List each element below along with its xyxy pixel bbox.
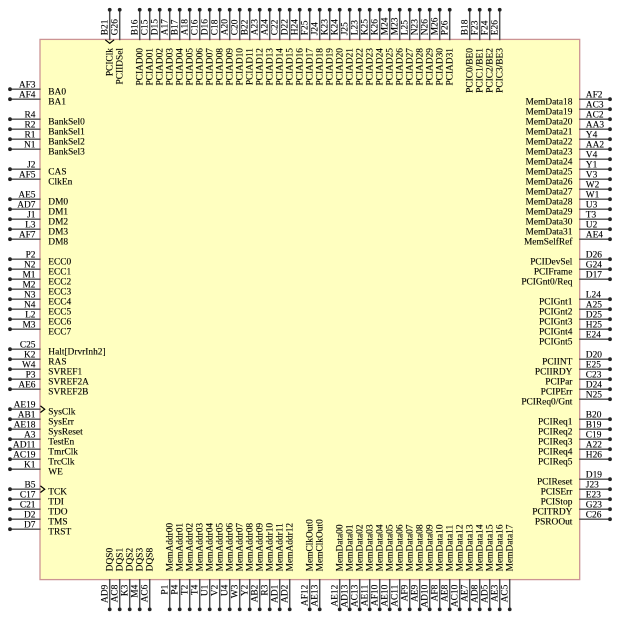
- svg-text:PCIIRDY: PCIIRDY: [535, 368, 573, 378]
- svg-text:D22: D22: [281, 19, 291, 35]
- svg-text:B17: B17: [171, 19, 181, 35]
- svg-text:MemClkOut0: MemClkOut0: [316, 519, 326, 571]
- svg-text:U2: U2: [586, 221, 598, 231]
- svg-text:BankSel2: BankSel2: [48, 138, 85, 148]
- svg-text:J24: J24: [311, 22, 321, 35]
- svg-text:DM0: DM0: [48, 198, 68, 208]
- svg-text:DM2: DM2: [48, 218, 68, 228]
- svg-text:MemData11: MemData11: [446, 524, 456, 571]
- svg-text:A17: A17: [161, 19, 171, 35]
- svg-text:ECC1: ECC1: [48, 268, 71, 278]
- svg-text:D7: D7: [24, 521, 36, 531]
- svg-text:TDO: TDO: [48, 508, 67, 518]
- svg-text:BankSel3: BankSel3: [48, 148, 85, 158]
- svg-text:DQS2: DQS2: [126, 548, 136, 572]
- svg-text:AF2: AF2: [586, 91, 603, 101]
- svg-text:PCIAD24: PCIAD24: [376, 48, 386, 86]
- svg-text:D25: D25: [586, 311, 602, 321]
- svg-text:MemAddr11: MemAddr11: [276, 523, 286, 571]
- svg-text:C20: C20: [231, 19, 241, 35]
- svg-text:J25: J25: [341, 22, 351, 35]
- svg-text:TDI: TDI: [48, 498, 64, 508]
- svg-text:TestEn: TestEn: [48, 438, 74, 448]
- svg-text:P3: P3: [26, 371, 36, 381]
- svg-text:TRST: TRST: [48, 528, 71, 538]
- svg-text:W1: W1: [586, 191, 600, 201]
- svg-text:MemAddr05: MemAddr05: [216, 523, 226, 572]
- svg-text:C17: C17: [20, 491, 36, 501]
- svg-text:V2: V2: [211, 584, 221, 596]
- svg-text:AB1: AB1: [18, 411, 36, 421]
- svg-text:K23: K23: [321, 19, 331, 35]
- svg-text:AF8: AF8: [431, 584, 441, 601]
- svg-text:PCIAD00: PCIAD00: [136, 48, 146, 86]
- svg-text:N26: N26: [421, 19, 431, 35]
- svg-text:PCIAD31: PCIAD31: [446, 48, 456, 86]
- svg-text:MemAddr07: MemAddr07: [236, 523, 246, 572]
- svg-text:PCIAD19: PCIAD19: [326, 48, 336, 86]
- svg-text:PCIAD29: PCIAD29: [426, 48, 436, 86]
- svg-text:E23: E23: [586, 491, 601, 501]
- svg-text:DQS1: DQS1: [116, 548, 126, 572]
- svg-text:AF5: AF5: [19, 171, 36, 181]
- svg-text:C19: C19: [586, 431, 602, 441]
- svg-text:A22: A22: [586, 441, 602, 451]
- svg-text:F25: F25: [301, 20, 311, 35]
- svg-text:PCIGnt3: PCIGnt3: [539, 318, 573, 328]
- svg-text:MemData07: MemData07: [406, 524, 416, 571]
- svg-text:PCIAD16: PCIAD16: [296, 48, 306, 86]
- svg-text:PCIC1/BE1: PCIC1/BE1: [476, 48, 486, 93]
- svg-text:V4: V4: [586, 151, 598, 161]
- svg-text:T3: T3: [586, 211, 597, 221]
- svg-text:MemAddr04: MemAddr04: [206, 523, 216, 572]
- svg-text:AE9: AE9: [411, 584, 421, 601]
- svg-text:P2: P2: [26, 251, 36, 261]
- svg-text:AB2: AB2: [251, 584, 261, 602]
- svg-text:L25: L25: [401, 20, 411, 35]
- svg-text:A18: A18: [181, 19, 191, 35]
- svg-text:Halt[DrvrInh2]: Halt[DrvrInh2]: [48, 348, 105, 358]
- svg-text:SVREF2A: SVREF2A: [48, 378, 89, 388]
- svg-text:M26: M26: [431, 17, 441, 35]
- svg-text:AC13: AC13: [351, 584, 361, 607]
- svg-text:MemData16: MemData16: [496, 524, 506, 571]
- svg-text:PCIAD11: PCIAD11: [246, 48, 256, 85]
- svg-text:A23: A23: [251, 19, 261, 35]
- svg-text:R2: R2: [25, 121, 36, 131]
- svg-text:A3: A3: [24, 431, 36, 441]
- svg-text:MemData24: MemData24: [526, 158, 573, 168]
- svg-text:MemData29: MemData29: [526, 208, 573, 218]
- svg-text:N4: N4: [24, 301, 36, 311]
- svg-text:C18: C18: [211, 19, 221, 35]
- svg-text:AD9: AD9: [101, 584, 111, 603]
- svg-text:AE6: AE6: [18, 381, 35, 391]
- svg-text:PCIAD01: PCIAD01: [146, 48, 156, 86]
- svg-text:AE12: AE12: [331, 584, 341, 606]
- svg-text:U3: U3: [586, 201, 598, 211]
- svg-text:D17: D17: [586, 271, 602, 281]
- svg-text:MemData22: MemData22: [526, 138, 573, 148]
- svg-text:MemData31: MemData31: [526, 228, 573, 238]
- svg-text:MemAddr00: MemAddr00: [166, 523, 176, 572]
- svg-text:TCK: TCK: [48, 488, 67, 498]
- svg-text:MemAddr01: MemAddr01: [176, 523, 186, 572]
- svg-text:P1: P1: [161, 584, 171, 594]
- svg-text:DM8: DM8: [48, 238, 68, 248]
- svg-text:PCIGnt0/Req: PCIGnt0/Req: [521, 278, 572, 288]
- svg-text:E25: E25: [586, 361, 601, 371]
- svg-text:D20: D20: [586, 351, 602, 361]
- svg-text:R3: R3: [261, 584, 271, 595]
- svg-text:MemData12: MemData12: [456, 524, 466, 571]
- svg-text:B22: B22: [241, 19, 251, 35]
- svg-text:AE7: AE7: [461, 584, 471, 601]
- svg-text:TmrClk: TmrClk: [48, 448, 78, 458]
- svg-text:AE5: AE5: [18, 191, 35, 201]
- svg-text:PCIAD21: PCIAD21: [346, 48, 356, 86]
- svg-text:B21: B21: [101, 19, 111, 35]
- svg-text:PCIAD28: PCIAD28: [416, 48, 426, 86]
- svg-text:K25: K25: [361, 19, 371, 35]
- svg-text:PCIAD03: PCIAD03: [166, 48, 176, 86]
- svg-text:R4: R4: [25, 111, 36, 121]
- svg-text:MemAddr02: MemAddr02: [186, 523, 196, 572]
- svg-text:R1: R1: [25, 131, 36, 141]
- svg-text:E26: E26: [491, 20, 501, 35]
- svg-text:PCIAD12: PCIAD12: [256, 48, 266, 86]
- svg-text:K3: K3: [121, 584, 131, 596]
- svg-text:BA1: BA1: [48, 98, 66, 108]
- svg-text:PCIReq1: PCIReq1: [538, 418, 573, 428]
- svg-text:PCIAD20: PCIAD20: [336, 48, 346, 86]
- svg-text:K1: K1: [24, 461, 36, 471]
- svg-text:C16: C16: [191, 19, 201, 35]
- svg-text:AF12: AF12: [301, 584, 311, 606]
- svg-text:MemAddr08: MemAddr08: [246, 523, 256, 572]
- svg-text:AC3: AC3: [586, 101, 604, 111]
- svg-text:N2: N2: [24, 261, 36, 271]
- svg-text:DM3: DM3: [48, 228, 68, 238]
- svg-text:MemData25: MemData25: [526, 168, 573, 178]
- svg-text:PCISErr: PCISErr: [541, 488, 574, 498]
- svg-text:DQS3: DQS3: [136, 548, 146, 572]
- svg-text:BankSel0: BankSel0: [48, 118, 85, 128]
- svg-text:AC10: AC10: [451, 584, 461, 607]
- svg-text:AD5: AD5: [481, 584, 491, 603]
- svg-text:H26: H26: [586, 451, 602, 461]
- svg-text:ECC4: ECC4: [48, 298, 71, 308]
- svg-text:P4: P4: [171, 584, 181, 594]
- svg-text:PCIFrame: PCIFrame: [534, 268, 573, 278]
- svg-text:W2: W2: [586, 181, 600, 191]
- svg-text:C21: C21: [20, 501, 36, 511]
- svg-text:AE8: AE8: [441, 584, 451, 601]
- svg-text:PCIAD10: PCIAD10: [236, 48, 246, 86]
- svg-text:W3: W3: [231, 584, 241, 598]
- svg-text:B20: B20: [586, 411, 602, 421]
- svg-text:PCIReq0/Gnt: PCIReq0/Gnt: [521, 398, 572, 408]
- svg-text:Y4: Y4: [586, 131, 598, 141]
- svg-text:H24: H24: [291, 19, 301, 35]
- svg-text:PCIGnt2: PCIGnt2: [539, 308, 573, 318]
- svg-text:AF4: AF4: [19, 91, 36, 101]
- svg-text:K26: K26: [371, 19, 381, 35]
- svg-text:N1: N1: [24, 141, 36, 151]
- svg-text:MemAddr09: MemAddr09: [256, 523, 266, 572]
- svg-text:AD2: AD2: [281, 584, 291, 603]
- svg-text:J1: J1: [27, 211, 36, 221]
- svg-text:PCIPar: PCIPar: [545, 378, 573, 388]
- svg-text:ECC3: ECC3: [48, 288, 71, 298]
- svg-text:DM1: DM1: [48, 208, 68, 218]
- svg-text:AF10: AF10: [371, 584, 381, 606]
- svg-text:AE10: AE10: [381, 584, 391, 606]
- svg-text:M2: M2: [22, 281, 35, 291]
- svg-text:AE4: AE4: [586, 231, 603, 241]
- svg-text:E24: E24: [586, 331, 601, 341]
- svg-text:ECC5: ECC5: [48, 308, 71, 318]
- svg-text:C26: C26: [586, 511, 602, 521]
- svg-text:SysClk: SysClk: [48, 408, 75, 418]
- svg-text:AA3: AA3: [586, 121, 605, 131]
- svg-text:PCIAD04: PCIAD04: [176, 48, 186, 86]
- svg-text:C25: C25: [20, 341, 36, 351]
- svg-text:PCIAD06: PCIAD06: [196, 48, 206, 86]
- svg-text:Y1: Y1: [586, 161, 598, 171]
- svg-text:G23: G23: [586, 501, 602, 511]
- svg-text:MemData20: MemData20: [526, 118, 573, 128]
- svg-text:WE: WE: [48, 468, 63, 478]
- svg-text:DQS0: DQS0: [106, 548, 116, 572]
- svg-text:ECC0: ECC0: [48, 258, 71, 268]
- svg-text:ClkEn: ClkEn: [48, 178, 72, 188]
- svg-text:AC6: AC6: [141, 584, 151, 602]
- svg-text:M24: M24: [381, 17, 391, 35]
- svg-text:M1: M1: [22, 271, 35, 281]
- svg-text:MemData02: MemData02: [356, 524, 366, 571]
- svg-text:AC2: AC2: [586, 111, 604, 121]
- svg-text:AE13: AE13: [311, 584, 321, 606]
- svg-text:TrcClk: TrcClk: [48, 458, 75, 468]
- svg-text:PCIReq2: PCIReq2: [538, 428, 573, 438]
- svg-text:PCIPErr: PCIPErr: [541, 388, 574, 398]
- svg-text:H25: H25: [586, 321, 602, 331]
- svg-text:BA0: BA0: [48, 88, 66, 98]
- svg-text:PCIGnt4: PCIGnt4: [539, 328, 573, 338]
- svg-text:PCIAD13: PCIAD13: [266, 48, 276, 86]
- svg-text:MemClkOut0: MemClkOut0: [306, 519, 316, 571]
- svg-text:SysReset: SysReset: [48, 428, 83, 438]
- svg-text:K24: K24: [331, 19, 341, 35]
- svg-text:MemAddr12: MemAddr12: [286, 523, 296, 572]
- svg-text:L24: L24: [586, 291, 601, 301]
- svg-text:PCIAD05: PCIAD05: [186, 48, 196, 86]
- svg-text:MemData13: MemData13: [466, 524, 476, 571]
- svg-text:AC11: AC11: [391, 584, 401, 606]
- svg-text:AC8: AC8: [111, 584, 121, 602]
- svg-text:PCIAD23: PCIAD23: [366, 48, 376, 86]
- svg-text:DQS8: DQS8: [146, 548, 156, 572]
- svg-text:MemData27: MemData27: [526, 188, 573, 198]
- svg-text:SVREF1: SVREF1: [48, 368, 82, 378]
- svg-text:AF3: AF3: [19, 81, 36, 91]
- svg-text:SysErr: SysErr: [48, 418, 74, 428]
- svg-text:PCIReq3: PCIReq3: [538, 438, 573, 448]
- svg-text:MemData23: MemData23: [526, 148, 573, 158]
- svg-text:Y2: Y2: [241, 584, 251, 596]
- svg-text:M3: M3: [22, 321, 35, 331]
- svg-text:MemAddr03: MemAddr03: [196, 523, 206, 572]
- svg-text:PCIAD15: PCIAD15: [286, 48, 296, 86]
- svg-text:AD11: AD11: [13, 441, 36, 451]
- svg-text:PCIAD17: PCIAD17: [306, 48, 316, 86]
- svg-text:MemData06: MemData06: [396, 524, 406, 571]
- svg-text:MemData09: MemData09: [426, 524, 436, 571]
- svg-text:K2: K2: [24, 351, 36, 361]
- svg-text:L2: L2: [25, 311, 36, 321]
- svg-text:BankSel1: BankSel1: [48, 128, 85, 138]
- svg-text:MemData26: MemData26: [526, 178, 573, 188]
- svg-text:V3: V3: [586, 171, 598, 181]
- svg-text:ECC7: ECC7: [48, 328, 71, 338]
- svg-text:W4: W4: [22, 361, 36, 371]
- svg-text:B16: B16: [131, 19, 141, 35]
- svg-text:F24: F24: [481, 20, 491, 35]
- svg-text:PCIReq5: PCIReq5: [538, 458, 573, 468]
- svg-text:AC19: AC19: [13, 451, 36, 461]
- svg-text:D2: D2: [24, 511, 36, 521]
- svg-text:D16: D16: [201, 19, 211, 35]
- svg-text:MemData19: MemData19: [526, 108, 573, 118]
- svg-text:SVREF2B: SVREF2B: [48, 388, 88, 398]
- svg-text:M23: M23: [391, 17, 401, 35]
- svg-text:B18: B18: [461, 19, 471, 35]
- svg-text:PCIStop: PCIStop: [541, 498, 573, 508]
- svg-text:MemSelfRef: MemSelfRef: [524, 237, 573, 248]
- svg-text:L23: L23: [351, 20, 361, 35]
- svg-text:G26: G26: [111, 19, 121, 35]
- svg-text:PCIDevSel: PCIDevSel: [530, 258, 573, 268]
- svg-text:PCIAD07: PCIAD07: [206, 48, 216, 86]
- svg-text:U1: U1: [201, 584, 211, 596]
- svg-text:AF9: AF9: [401, 584, 411, 601]
- svg-text:L3: L3: [25, 221, 36, 231]
- svg-text:A20: A20: [221, 19, 231, 35]
- svg-text:N23: N23: [411, 19, 421, 35]
- svg-text:AD1: AD1: [271, 584, 281, 603]
- svg-text:MemAddr06: MemAddr06: [226, 523, 236, 572]
- svg-text:PCIAD14: PCIAD14: [276, 48, 286, 86]
- svg-text:PCIIDSel: PCIIDSel: [116, 48, 126, 85]
- svg-text:T2: T2: [181, 584, 191, 595]
- svg-text:G24: G24: [586, 261, 602, 271]
- svg-text:AF7: AF7: [19, 231, 36, 241]
- svg-text:MemData14: MemData14: [476, 524, 486, 571]
- svg-text:AD7: AD7: [17, 201, 36, 211]
- svg-text:AE18: AE18: [14, 421, 36, 431]
- svg-text:MemData21: MemData21: [526, 128, 573, 138]
- svg-text:PCIReset: PCIReset: [537, 478, 573, 488]
- svg-text:PCIC2/BE2: PCIC2/BE2: [486, 48, 496, 93]
- svg-text:PCITRDY: PCITRDY: [532, 508, 572, 518]
- svg-text:D19: D19: [586, 471, 602, 481]
- svg-text:PCIAD30: PCIAD30: [436, 48, 446, 86]
- svg-text:A25: A25: [586, 301, 602, 311]
- svg-text:C15: C15: [141, 19, 151, 35]
- svg-text:MemData00: MemData00: [336, 524, 346, 571]
- svg-text:D24: D24: [586, 381, 602, 391]
- svg-text:PCIAD22: PCIAD22: [356, 48, 366, 86]
- svg-text:ECC6: ECC6: [48, 318, 71, 328]
- svg-text:MemData04: MemData04: [376, 524, 386, 571]
- svg-text:MemAddr10: MemAddr10: [266, 523, 276, 572]
- svg-text:PCIAD25: PCIAD25: [386, 48, 396, 86]
- svg-text:U4: U4: [221, 584, 231, 596]
- svg-text:PCIC0/BE0: PCIC0/BE0: [466, 48, 476, 93]
- svg-text:PCIAD26: PCIAD26: [396, 48, 406, 86]
- svg-text:PCIINT: PCIINT: [542, 358, 572, 368]
- svg-text:PCIGnt1: PCIGnt1: [539, 298, 573, 308]
- svg-text:AC5: AC5: [501, 584, 511, 602]
- svg-text:RAS: RAS: [48, 358, 66, 368]
- svg-text:PCIAD09: PCIAD09: [226, 48, 236, 86]
- svg-text:PCIC3/BE3: PCIC3/BE3: [496, 48, 506, 93]
- svg-text:PCIReq4: PCIReq4: [538, 448, 573, 458]
- svg-text:MemData05: MemData05: [386, 524, 396, 571]
- svg-text:N3: N3: [24, 291, 36, 301]
- svg-text:AD10: AD10: [421, 584, 431, 607]
- svg-text:P26: P26: [441, 20, 451, 35]
- svg-text:MemData30: MemData30: [526, 218, 573, 228]
- svg-text:PCIAD08: PCIAD08: [216, 48, 226, 86]
- svg-text:N25: N25: [586, 391, 602, 401]
- svg-text:PCIGnt5: PCIGnt5: [539, 338, 573, 348]
- svg-text:AD8: AD8: [471, 584, 481, 603]
- svg-text:PCIAD27: PCIAD27: [406, 48, 416, 86]
- svg-text:AA2: AA2: [586, 141, 605, 151]
- svg-text:D26: D26: [586, 251, 602, 261]
- svg-text:A24: A24: [261, 19, 271, 35]
- svg-text:MemData03: MemData03: [366, 524, 376, 571]
- svg-text:MemData28: MemData28: [526, 198, 573, 208]
- svg-text:C22: C22: [271, 19, 281, 35]
- svg-text:PCIAD02: PCIAD02: [156, 48, 166, 86]
- svg-text:B19: B19: [586, 421, 602, 431]
- svg-text:CAS: CAS: [48, 168, 66, 178]
- svg-text:D15: D15: [151, 19, 161, 35]
- svg-text:AE11: AE11: [361, 584, 371, 606]
- svg-text:TMS: TMS: [48, 518, 67, 528]
- svg-text:T4: T4: [191, 584, 201, 595]
- svg-text:PCIAD18: PCIAD18: [316, 48, 326, 86]
- svg-text:MemData10: MemData10: [436, 524, 446, 571]
- svg-text:MemData18: MemData18: [526, 98, 573, 108]
- svg-text:ECC2: ECC2: [48, 278, 71, 288]
- svg-text:MemData17: MemData17: [506, 524, 516, 571]
- svg-text:PSROOut: PSROOut: [535, 518, 573, 528]
- svg-text:B5: B5: [25, 481, 36, 491]
- svg-text:F23: F23: [471, 20, 481, 35]
- svg-text:MemData01: MemData01: [346, 524, 356, 571]
- svg-text:AE19: AE19: [14, 401, 36, 411]
- svg-text:J2: J2: [27, 161, 36, 171]
- svg-text:AE3: AE3: [491, 584, 501, 601]
- svg-text:AD13: AD13: [341, 584, 351, 607]
- svg-text:M4: M4: [131, 584, 141, 597]
- svg-text:MemData08: MemData08: [416, 524, 426, 571]
